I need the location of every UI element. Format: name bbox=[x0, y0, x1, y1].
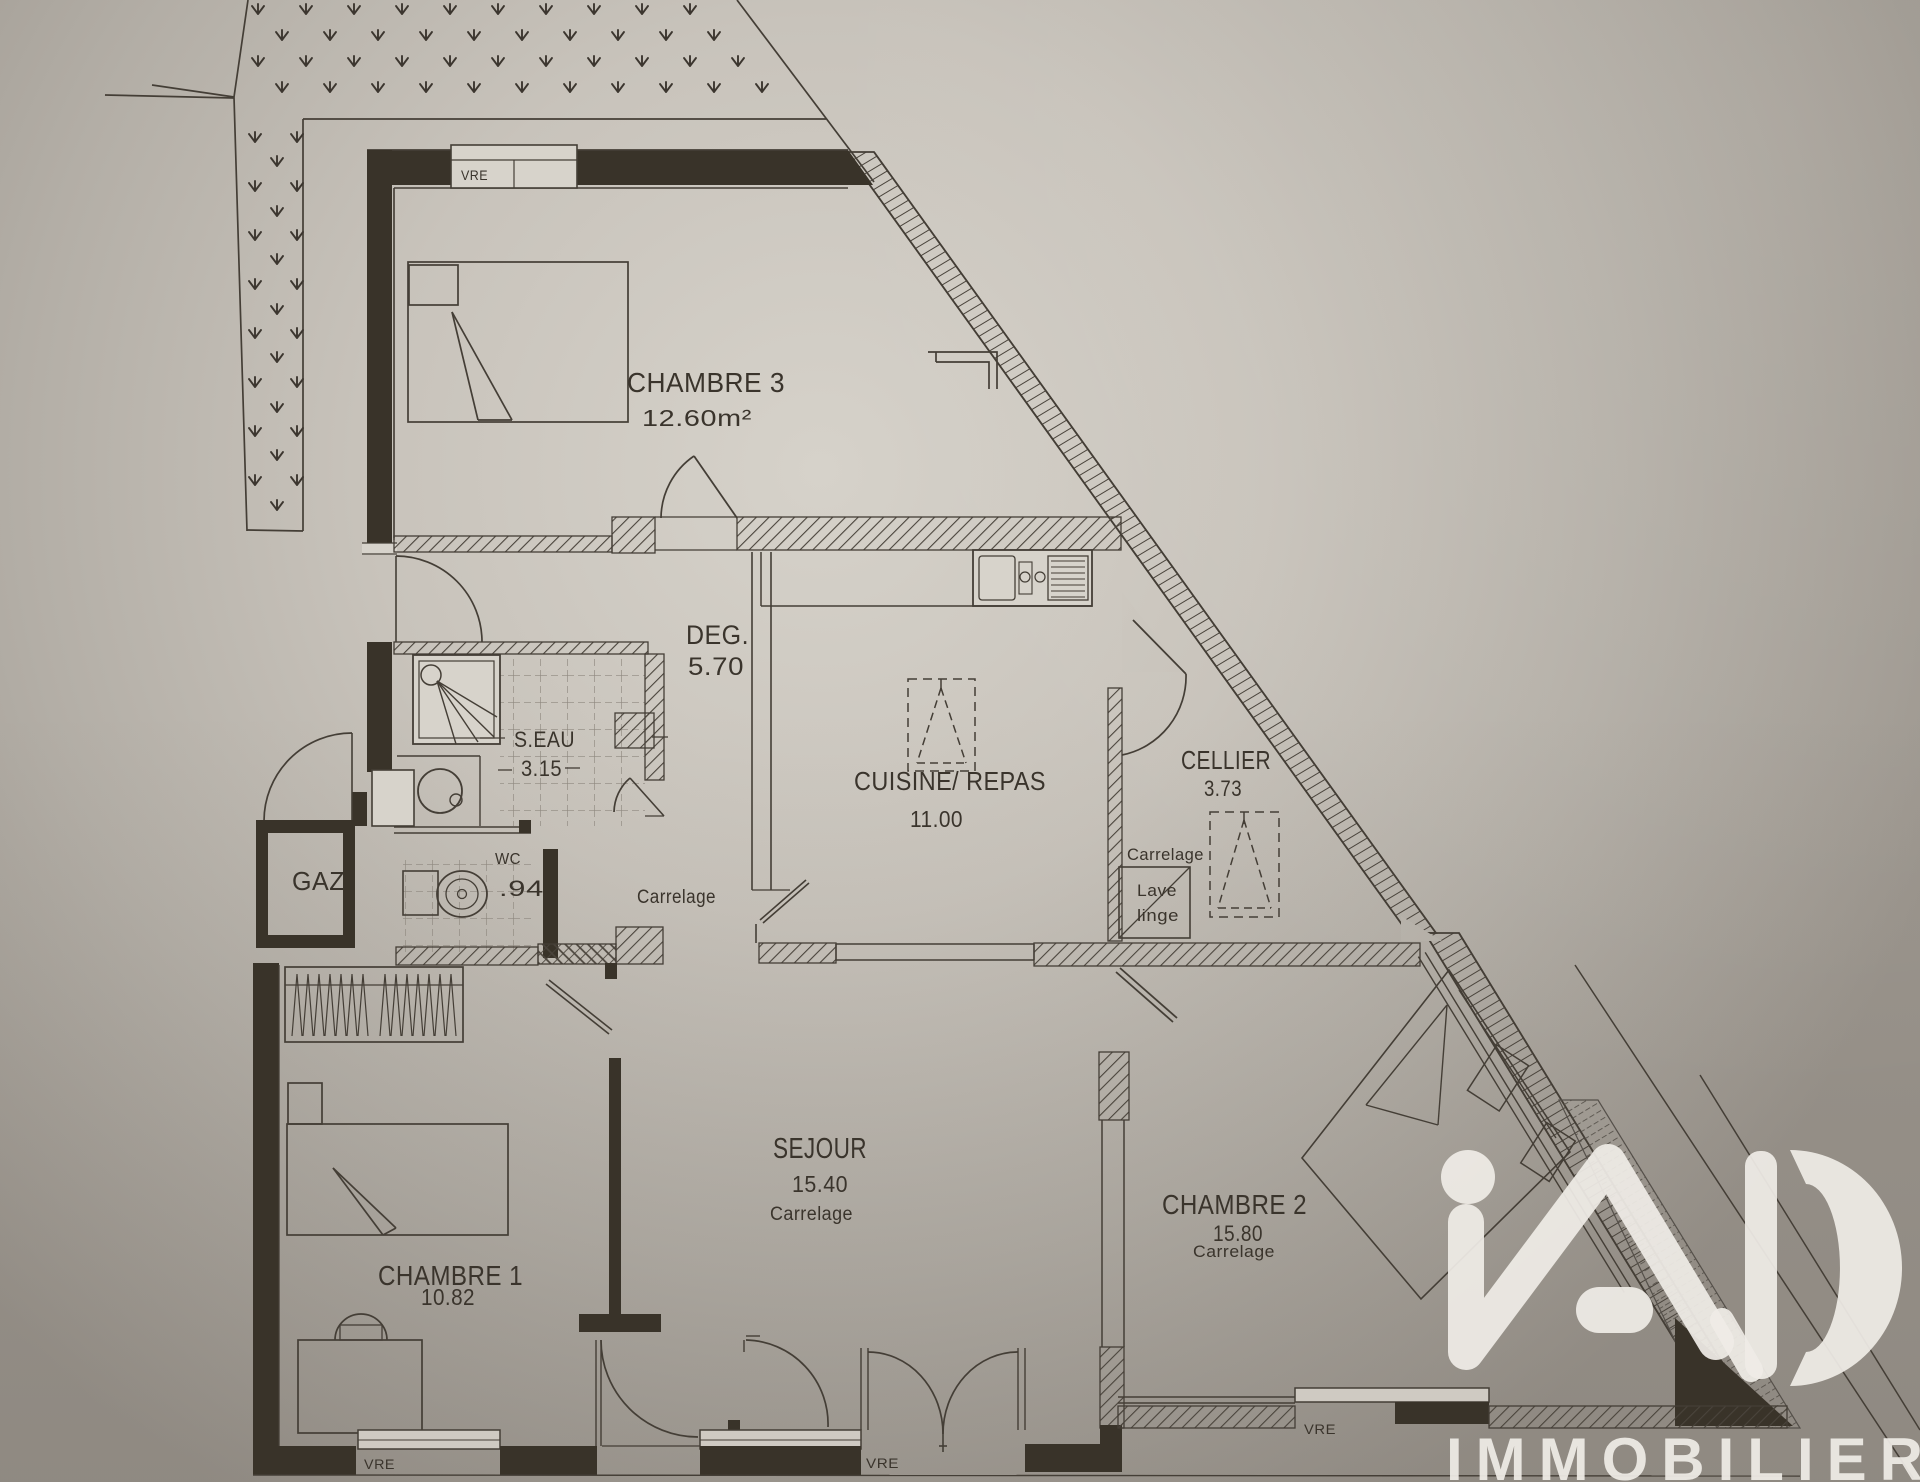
svg-text:DEG.: DEG. bbox=[686, 620, 749, 650]
svg-text:VRE: VRE bbox=[1304, 1421, 1336, 1437]
svg-text:12.60m²: 12.60m² bbox=[642, 405, 752, 431]
svg-text:15.40: 15.40 bbox=[792, 1171, 848, 1197]
svg-text:linge: linge bbox=[1137, 906, 1179, 925]
svg-text:Carrelage: Carrelage bbox=[770, 1204, 853, 1225]
svg-text:GAZ: GAZ bbox=[292, 866, 345, 896]
svg-text:IMMOBILIER: IMMOBILIER bbox=[1446, 1426, 1920, 1482]
svg-text:5.70: 5.70 bbox=[688, 653, 744, 681]
svg-text:3.73: 3.73 bbox=[1204, 776, 1242, 801]
svg-text:Carrelage: Carrelage bbox=[637, 887, 716, 908]
svg-text:WC: WC bbox=[495, 851, 521, 868]
svg-text:CELLIER: CELLIER bbox=[1181, 745, 1271, 775]
svg-text:S.EAU: S.EAU bbox=[514, 727, 575, 752]
svg-text:Carrelage: Carrelage bbox=[1127, 845, 1204, 864]
svg-text:CHAMBRE 2: CHAMBRE 2 bbox=[1162, 1189, 1307, 1220]
svg-text:Carrelage: Carrelage bbox=[1193, 1242, 1275, 1261]
svg-text:VRE: VRE bbox=[461, 167, 488, 183]
svg-text:SEJOUR: SEJOUR bbox=[773, 1133, 867, 1165]
svg-text:10.82: 10.82 bbox=[421, 1284, 475, 1310]
svg-text:Lave: Lave bbox=[1137, 881, 1177, 900]
svg-text:CHAMBRE 3: CHAMBRE 3 bbox=[627, 367, 785, 398]
svg-text:.94: .94 bbox=[499, 876, 544, 901]
svg-text:11.00: 11.00 bbox=[910, 806, 963, 832]
svg-text:3.15: 3.15 bbox=[521, 756, 562, 781]
svg-text:VRE: VRE bbox=[866, 1455, 899, 1471]
svg-text:VRE: VRE bbox=[364, 1456, 395, 1472]
